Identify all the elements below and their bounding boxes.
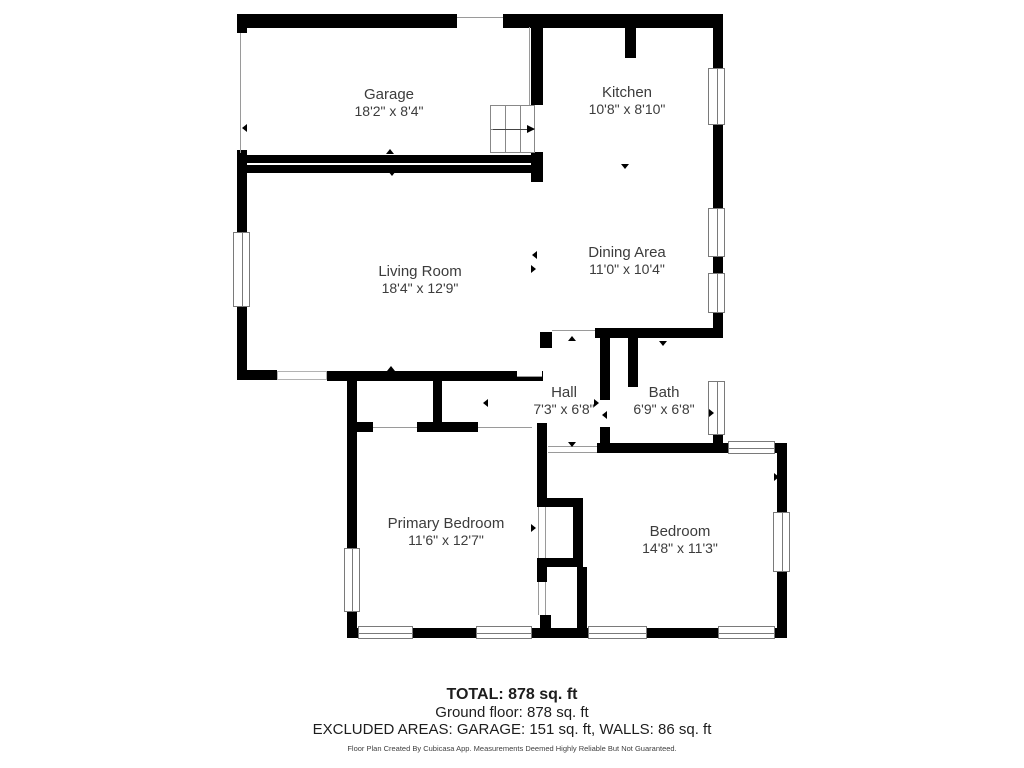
wall	[713, 14, 723, 68]
room-name: Bedroom	[642, 523, 718, 540]
marker-icon	[386, 149, 394, 154]
closet-door-line	[538, 582, 539, 615]
marker-icon	[621, 164, 629, 169]
marker-icon	[709, 409, 714, 417]
room-dimensions: 7'3" x 6'8"	[533, 401, 594, 418]
window	[708, 68, 725, 125]
marker-icon	[531, 265, 536, 273]
room-name: Dining Area	[588, 244, 666, 261]
wall	[573, 498, 583, 567]
opening-line	[552, 330, 595, 331]
opening-line	[457, 17, 503, 18]
wall	[625, 28, 636, 58]
window	[358, 626, 413, 639]
closet-door-line	[545, 507, 546, 558]
closet-door-line	[538, 507, 539, 558]
room-name: Garage	[355, 86, 424, 103]
closet-door-line	[545, 582, 546, 615]
wall	[537, 423, 547, 500]
room-dimensions: 10'8" x 8'10"	[589, 101, 666, 118]
room-label-kitchen: Kitchen 10'8" x 8'10"	[589, 84, 666, 118]
wall	[600, 337, 610, 400]
wall	[237, 163, 247, 232]
marker-icon	[387, 366, 395, 371]
wall	[237, 370, 277, 380]
wall	[531, 14, 543, 105]
room-name: Primary Bedroom	[388, 515, 505, 532]
window	[708, 208, 725, 257]
room-dimensions: 18'4" x 12'9"	[378, 280, 461, 297]
marker-icon	[594, 399, 599, 407]
window	[476, 626, 532, 639]
stairs-direction-arrow	[527, 125, 535, 133]
door-notch	[517, 371, 542, 377]
wall	[713, 125, 723, 208]
marker-icon	[382, 21, 390, 26]
marker-icon	[674, 447, 682, 452]
marker-icon	[774, 473, 779, 481]
window	[718, 626, 775, 639]
wall	[577, 567, 587, 628]
window	[344, 548, 360, 612]
room-name: Bath	[633, 384, 694, 401]
wall	[775, 628, 787, 638]
wall	[531, 152, 543, 182]
marker-icon	[352, 524, 357, 532]
wall	[713, 257, 723, 273]
opening-line	[478, 427, 532, 428]
wall	[532, 628, 588, 638]
room-name: Hall	[533, 384, 594, 401]
door-line	[548, 452, 597, 453]
marker-icon	[659, 341, 667, 346]
floor-plan: Garage 18'2" x 8'4" Kitchen 10'8" x 8'10…	[0, 0, 1024, 768]
ground-floor-text: Ground floor: 878 sq. ft	[0, 704, 1024, 721]
marker-icon	[442, 425, 450, 430]
wall	[237, 14, 457, 28]
room-dimensions: 18'2" x 8'4"	[355, 103, 424, 120]
marker-icon	[483, 399, 488, 407]
garage-door-line	[240, 33, 241, 153]
room-label-primary-bedroom: Primary Bedroom 11'6" x 12'7"	[388, 515, 505, 549]
window	[708, 381, 725, 435]
wall	[537, 558, 583, 567]
wall	[540, 332, 552, 348]
marker-icon	[602, 411, 607, 419]
marker-icon	[532, 251, 537, 259]
room-label-hall: Hall 7'3" x 6'8"	[533, 384, 594, 418]
room-label-garage: Garage 18'2" x 8'4"	[355, 86, 424, 120]
disclaimer-text: Floor Plan Created By Cubicasa App. Meas…	[0, 744, 1024, 753]
marker-icon	[443, 629, 451, 634]
marker-icon	[388, 171, 396, 176]
marker-icon	[242, 124, 247, 132]
wall	[777, 572, 787, 632]
wall	[540, 615, 551, 628]
wall	[355, 422, 373, 432]
room-dimensions: 11'6" x 12'7"	[388, 532, 505, 549]
marker-icon	[542, 471, 547, 479]
excluded-areas-text: EXCLUDED AREAS: GARAGE: 151 sq. ft, WALL…	[0, 721, 1024, 738]
window	[588, 626, 647, 639]
room-label-bath: Bath 6'9" x 6'8"	[633, 384, 694, 418]
marker-icon	[531, 524, 536, 532]
door-line	[529, 27, 530, 105]
marker-icon	[568, 442, 576, 447]
window	[708, 273, 725, 313]
window	[773, 512, 790, 572]
room-label-dining-area: Dining Area 11'0" x 10'4"	[588, 244, 666, 278]
stairs-icon	[490, 105, 535, 153]
front-door	[277, 371, 327, 380]
wall	[597, 443, 728, 453]
marker-icon	[568, 336, 576, 341]
room-name: Kitchen	[589, 84, 666, 101]
room-label-bedroom: Bedroom 14'8" x 11'3"	[642, 523, 718, 557]
window	[728, 441, 775, 454]
wall	[237, 307, 247, 378]
room-dimensions: 6'9" x 6'8"	[633, 401, 694, 418]
room-dimensions: 11'0" x 10'4"	[588, 261, 666, 278]
wall	[347, 375, 357, 548]
room-dimensions: 14'8" x 11'3"	[642, 540, 718, 557]
wall	[595, 328, 723, 338]
room-label-living-room: Living Room 18'4" x 12'9"	[378, 263, 461, 297]
marker-icon	[624, 329, 632, 334]
total-area-text: TOTAL: 878 sq. ft	[0, 686, 1024, 704]
marker-icon	[674, 629, 682, 634]
wall	[537, 567, 547, 582]
opening-line	[373, 427, 417, 428]
wall	[647, 628, 718, 638]
wall	[628, 337, 638, 387]
wall	[237, 155, 543, 163]
wall	[433, 378, 442, 425]
room-name: Living Room	[378, 263, 461, 280]
wall	[237, 14, 247, 33]
window	[233, 232, 250, 307]
